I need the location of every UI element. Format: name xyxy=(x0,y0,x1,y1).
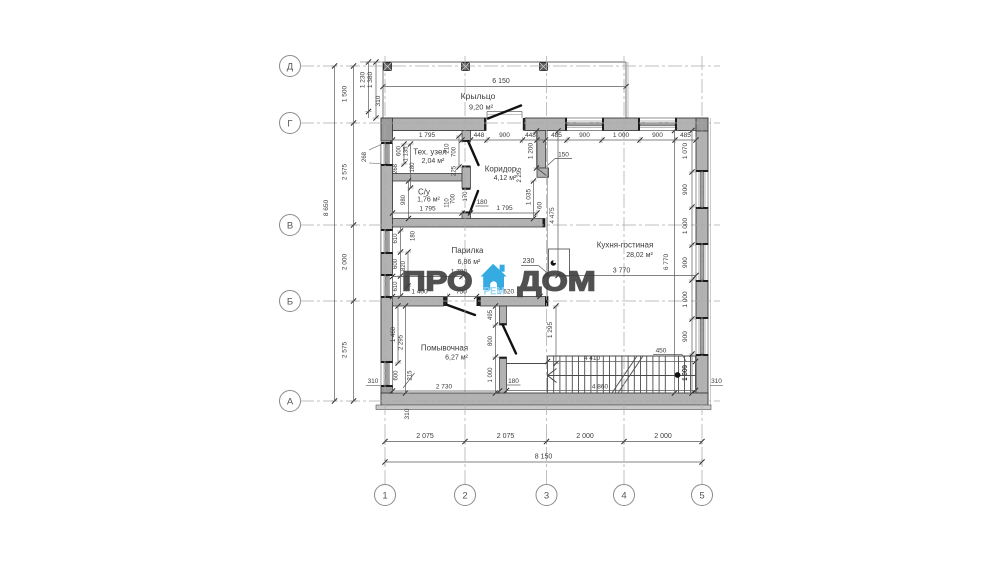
svg-text:180: 180 xyxy=(477,199,488,206)
svg-text:1 795: 1 795 xyxy=(496,205,513,212)
svg-text:А: А xyxy=(287,396,294,407)
svg-text:2 000: 2 000 xyxy=(576,433,594,440)
svg-text:60: 60 xyxy=(537,202,544,210)
svg-text:2 295: 2 295 xyxy=(399,334,405,350)
svg-text:2 075: 2 075 xyxy=(497,433,515,440)
svg-text:Коридор: Коридор xyxy=(485,165,517,174)
svg-text:Парилка: Парилка xyxy=(452,246,484,255)
svg-text:2 075: 2 075 xyxy=(416,433,434,440)
svg-text:1 000: 1 000 xyxy=(488,367,494,383)
svg-text:1 000: 1 000 xyxy=(613,132,630,139)
svg-text:Помывочная: Помывочная xyxy=(421,344,468,353)
svg-text:225: 225 xyxy=(452,165,458,176)
svg-text:4 860: 4 860 xyxy=(592,384,609,391)
svg-text:700: 700 xyxy=(451,193,457,204)
svg-text:9,20 м²: 9,20 м² xyxy=(469,103,494,112)
svg-text:1 460: 1 460 xyxy=(391,326,397,342)
svg-text:180: 180 xyxy=(411,230,417,241)
svg-text:8 150: 8 150 xyxy=(535,454,553,461)
svg-text:900: 900 xyxy=(579,132,590,139)
svg-text:1 035: 1 035 xyxy=(526,188,533,205)
svg-text:4 410: 4 410 xyxy=(584,355,601,362)
svg-text:2,04 м²: 2,04 м² xyxy=(422,158,445,165)
svg-text:900: 900 xyxy=(682,331,689,342)
svg-text:28,02 м²: 28,02 м² xyxy=(626,252,653,259)
svg-text:2 575: 2 575 xyxy=(342,163,349,180)
svg-text:2 730: 2 730 xyxy=(436,384,453,391)
svg-text:180: 180 xyxy=(508,378,519,385)
svg-text:610: 610 xyxy=(393,233,399,244)
svg-text:310: 310 xyxy=(368,378,379,385)
svg-text:900: 900 xyxy=(682,184,689,195)
svg-text:РЕМ: РЕМ xyxy=(484,286,505,298)
svg-text:Кухня-гостиная: Кухня-гостиная xyxy=(597,241,654,250)
svg-text:Д: Д xyxy=(287,61,294,72)
svg-text:268: 268 xyxy=(362,151,368,162)
svg-text:6,27 м²: 6,27 м² xyxy=(445,355,468,362)
svg-text:1: 1 xyxy=(382,490,387,501)
svg-text:С/у: С/у xyxy=(418,188,430,197)
svg-text:2: 2 xyxy=(462,490,467,501)
svg-text:3 770: 3 770 xyxy=(613,268,631,275)
svg-text:Г: Г xyxy=(287,118,292,129)
svg-text:980: 980 xyxy=(401,194,407,205)
svg-text:310: 310 xyxy=(711,378,722,385)
svg-text:900: 900 xyxy=(499,132,510,139)
svg-text:268: 268 xyxy=(393,163,399,174)
svg-text:900: 900 xyxy=(682,257,689,268)
svg-text:1 000: 1 000 xyxy=(683,365,689,381)
svg-text:В: В xyxy=(287,220,293,231)
svg-text:600: 600 xyxy=(393,258,399,269)
svg-text:2 575: 2 575 xyxy=(342,341,349,358)
svg-text:310: 310 xyxy=(375,95,382,106)
svg-text:1 000: 1 000 xyxy=(682,291,689,308)
svg-text:1 795: 1 795 xyxy=(419,132,436,139)
svg-text:8 650: 8 650 xyxy=(323,199,330,216)
svg-text:1 200: 1 200 xyxy=(528,142,535,159)
svg-text:Тех. узел: Тех. узел xyxy=(413,148,447,157)
svg-text:180: 180 xyxy=(410,162,416,173)
svg-text:150: 150 xyxy=(558,152,569,159)
svg-text:230: 230 xyxy=(523,258,535,265)
svg-text:ДОМ: ДОМ xyxy=(518,266,596,297)
svg-text:1 795: 1 795 xyxy=(419,206,436,213)
svg-text:3: 3 xyxy=(544,490,549,501)
svg-text:4 475: 4 475 xyxy=(549,207,556,224)
svg-text:2 000: 2 000 xyxy=(342,253,349,270)
svg-text:448: 448 xyxy=(474,132,485,139)
svg-text:495: 495 xyxy=(488,309,494,320)
svg-text:ПРО: ПРО xyxy=(402,266,473,297)
svg-text:485: 485 xyxy=(551,132,562,139)
svg-text:1 230: 1 230 xyxy=(360,71,367,88)
svg-text:610: 610 xyxy=(393,281,399,292)
svg-text:450: 450 xyxy=(656,348,667,355)
svg-text:800: 800 xyxy=(488,335,494,346)
svg-text:1,76 м²: 1,76 м² xyxy=(417,197,440,204)
svg-text:6 150: 6 150 xyxy=(492,78,510,85)
svg-text:Крыльцо: Крыльцо xyxy=(461,91,496,101)
svg-text:Б: Б xyxy=(287,296,293,307)
svg-text:1 135: 1 135 xyxy=(404,146,410,162)
svg-text:1 000: 1 000 xyxy=(682,217,689,234)
svg-text:1 070: 1 070 xyxy=(682,142,689,159)
svg-text:5: 5 xyxy=(699,490,704,501)
svg-text:6 770: 6 770 xyxy=(663,253,670,270)
svg-text:1 380: 1 380 xyxy=(367,71,374,88)
svg-text:4,12 м²: 4,12 м² xyxy=(494,175,517,182)
svg-text:1 500: 1 500 xyxy=(342,85,349,102)
svg-text:600: 600 xyxy=(394,370,400,381)
svg-text:600: 600 xyxy=(397,145,403,156)
svg-text:700: 700 xyxy=(452,146,458,157)
svg-text:2 000: 2 000 xyxy=(654,433,672,440)
svg-text:1 295: 1 295 xyxy=(547,321,554,338)
svg-text:170: 170 xyxy=(463,191,469,202)
svg-text:2 295: 2 295 xyxy=(517,167,523,183)
svg-text:4: 4 xyxy=(621,490,626,501)
svg-text:310: 310 xyxy=(404,408,411,419)
svg-text:900: 900 xyxy=(652,132,663,139)
